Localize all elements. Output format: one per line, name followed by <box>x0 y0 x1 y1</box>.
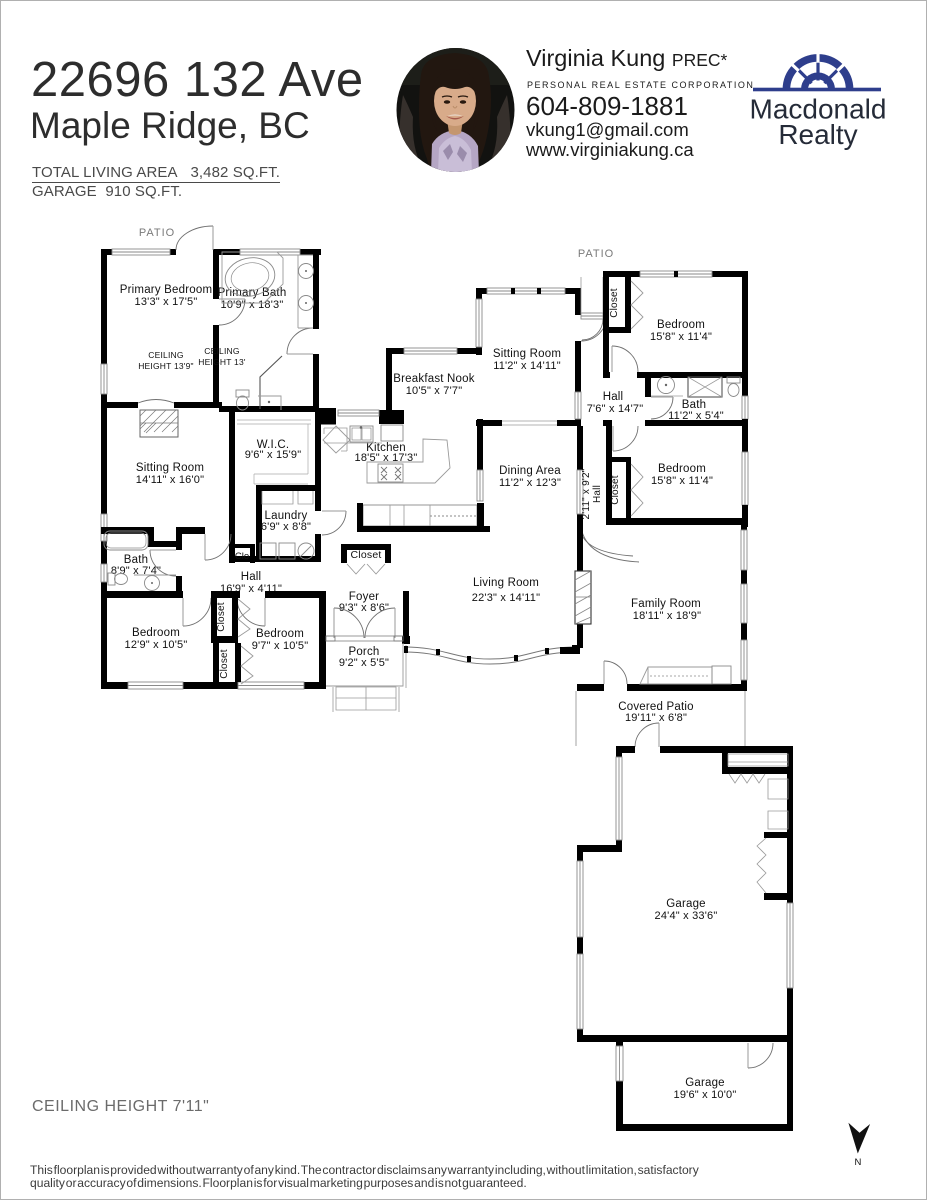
svg-text:15'8" x 11'4": 15'8" x 11'4" <box>651 475 713 487</box>
svg-text:Closet: Closet <box>609 288 620 318</box>
svg-text:Garage: Garage <box>666 898 706 910</box>
svg-text:Family Room: Family Room <box>631 598 701 610</box>
svg-text:15'8" x 11'4": 15'8" x 11'4" <box>650 331 712 343</box>
svg-text:Primary Bath: Primary Bath <box>218 287 287 299</box>
svg-text:Garage: Garage <box>685 1077 725 1089</box>
svg-text:12'9" x 10'5": 12'9" x 10'5" <box>125 639 188 651</box>
svg-text:PATIO: PATIO <box>578 248 614 260</box>
svg-text:HEIGHT 13'9": HEIGHT 13'9" <box>138 361 194 371</box>
svg-text:18'11" x 18'9": 18'11" x 18'9" <box>633 610 701 622</box>
svg-text:Primary Bedroom: Primary Bedroom <box>120 284 212 296</box>
svg-text:6'9" x 8'8": 6'9" x 8'8" <box>261 521 311 533</box>
svg-text:HEIGHT 13': HEIGHT 13' <box>198 357 246 367</box>
svg-text:Bedroom: Bedroom <box>256 628 304 640</box>
svg-text:Sitting Room: Sitting Room <box>493 348 561 360</box>
svg-text:PATIO: PATIO <box>139 227 175 239</box>
svg-text:10'5" x 7'7": 10'5" x 7'7" <box>406 385 463 397</box>
svg-text:Clo: Clo <box>235 551 249 562</box>
svg-text:Closet: Closet <box>351 549 382 561</box>
svg-text:Bedroom: Bedroom <box>657 319 705 331</box>
svg-text:9'2" x 5'5": 9'2" x 5'5" <box>339 657 389 669</box>
svg-text:22'3" x 14'11": 22'3" x 14'11" <box>472 592 540 604</box>
svg-text:9'6" x 15'9": 9'6" x 15'9" <box>245 449 302 461</box>
svg-text:Hall: Hall <box>603 391 624 403</box>
svg-text:11'2" x 14'11": 11'2" x 14'11" <box>493 360 561 372</box>
svg-text:Closet: Closet <box>216 602 227 632</box>
svg-text:Hall: Hall <box>592 485 603 503</box>
svg-text:9'3" x 8'6": 9'3" x 8'6" <box>339 602 389 614</box>
svg-text:13'3" x 17'5": 13'3" x 17'5" <box>135 296 198 308</box>
svg-text:CEILING: CEILING <box>148 350 183 360</box>
svg-text:11'2" x 12'3": 11'2" x 12'3" <box>499 477 561 489</box>
svg-text:Breakfast Nook: Breakfast Nook <box>393 373 474 385</box>
svg-text:19'6" x 10'0": 19'6" x 10'0" <box>674 1089 737 1101</box>
svg-text:Bedroom: Bedroom <box>658 463 706 475</box>
svg-text:Closet: Closet <box>610 475 621 505</box>
svg-text:24'4" x 33'6": 24'4" x 33'6" <box>655 910 718 922</box>
svg-text:14'11" x 16'0": 14'11" x 16'0" <box>136 474 204 486</box>
svg-text:2'11" x 9'2": 2'11" x 9'2" <box>581 468 592 519</box>
svg-text:9'7" x 10'5": 9'7" x 10'5" <box>252 640 309 652</box>
svg-text:CEILING: CEILING <box>204 346 239 356</box>
svg-text:Closet: Closet <box>219 649 230 679</box>
svg-text:Sitting Room: Sitting Room <box>136 462 204 474</box>
svg-text:10'9" x 18'3": 10'9" x 18'3" <box>221 299 284 311</box>
svg-text:N: N <box>854 1157 861 1168</box>
svg-text:Living Room: Living Room <box>473 577 539 589</box>
svg-text:Dining Area: Dining Area <box>499 465 561 477</box>
svg-text:Bedroom: Bedroom <box>132 627 180 639</box>
svg-text:7'6" x 14'7": 7'6" x 14'7" <box>587 403 644 415</box>
svg-text:19'11" x 6'8": 19'11" x 6'8" <box>625 712 687 724</box>
svg-text:Hall: Hall <box>241 571 262 583</box>
